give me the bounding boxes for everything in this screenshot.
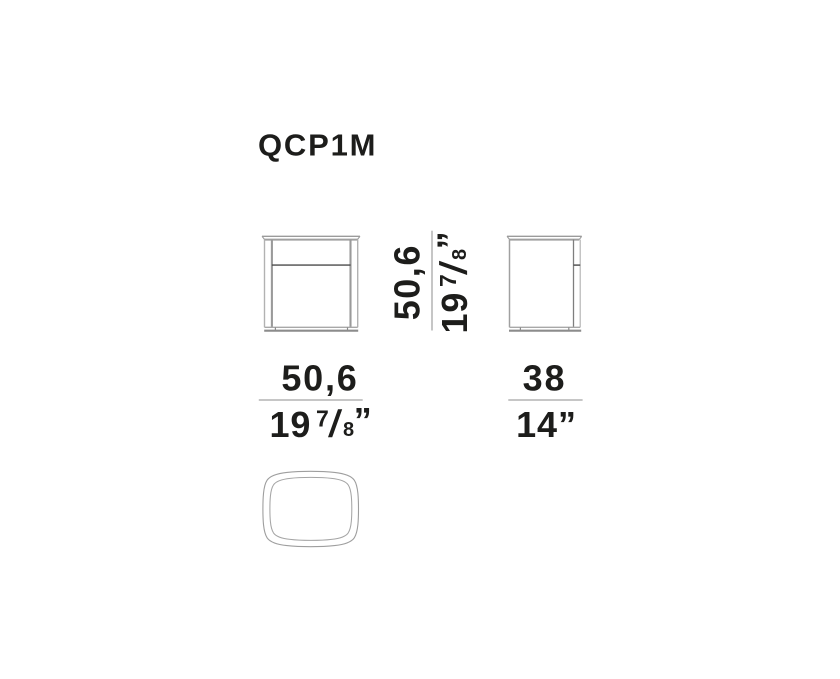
svg-text:7: 7 (316, 405, 329, 431)
svg-text:38: 38 (523, 357, 567, 398)
svg-text:”: ” (354, 400, 372, 441)
svg-text:8: 8 (343, 419, 354, 441)
svg-text:14”: 14” (516, 404, 577, 445)
svg-text:QCP1M: QCP1M (258, 128, 377, 163)
svg-text:8: 8 (449, 249, 471, 260)
svg-text:19: 19 (434, 292, 475, 334)
svg-text:”: ” (430, 231, 471, 249)
svg-text:50,6: 50,6 (387, 244, 428, 320)
svg-text:7: 7 (435, 274, 461, 287)
svg-text:50,6: 50,6 (281, 357, 358, 398)
svg-text:19: 19 (270, 404, 312, 445)
